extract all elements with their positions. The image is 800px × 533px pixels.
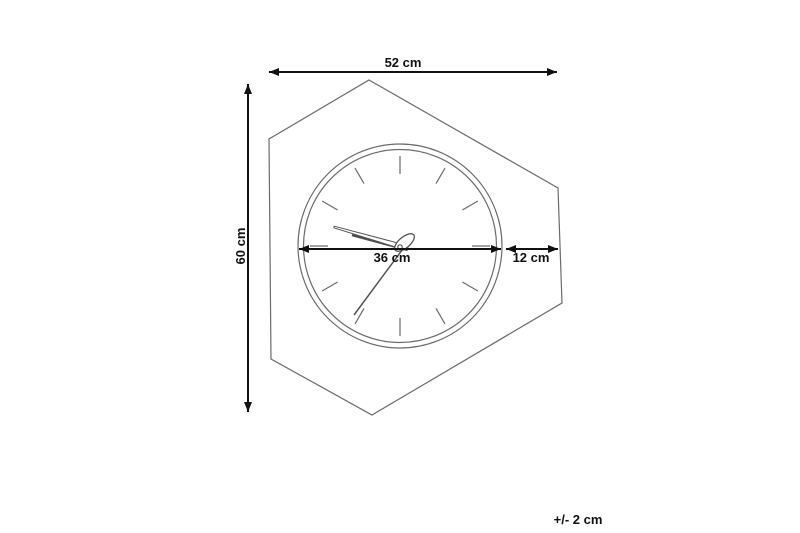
dial-diameter-label: 36 cm: [374, 250, 411, 265]
diagram-canvas: 52 cm 60 cm 36 cm 12 cm +/- 2 cm: [0, 0, 800, 533]
dimension-dial-diameter: 36 cm: [299, 249, 501, 265]
tick-8: [322, 282, 338, 291]
tick-2: [462, 201, 478, 210]
tick-11: [355, 168, 364, 184]
side-section-label: 12 cm: [513, 250, 550, 265]
dimension-diagram: 52 cm 60 cm 36 cm 12 cm +/- 2 cm: [0, 0, 800, 533]
tick-5: [436, 308, 445, 324]
tolerance-note: +/- 2 cm: [554, 512, 603, 527]
clock-hands: [334, 226, 417, 315]
hexagon-clock-body: [269, 80, 562, 415]
width-label: 52 cm: [385, 55, 422, 70]
tick-10: [322, 201, 338, 210]
tick-1: [436, 168, 445, 184]
dimension-side-section: 12 cm: [506, 249, 558, 265]
height-label: 60 cm: [233, 228, 248, 265]
dimension-height: 60 cm: [233, 84, 248, 412]
tick-4: [462, 282, 478, 291]
dimension-width: 52 cm: [269, 55, 557, 72]
